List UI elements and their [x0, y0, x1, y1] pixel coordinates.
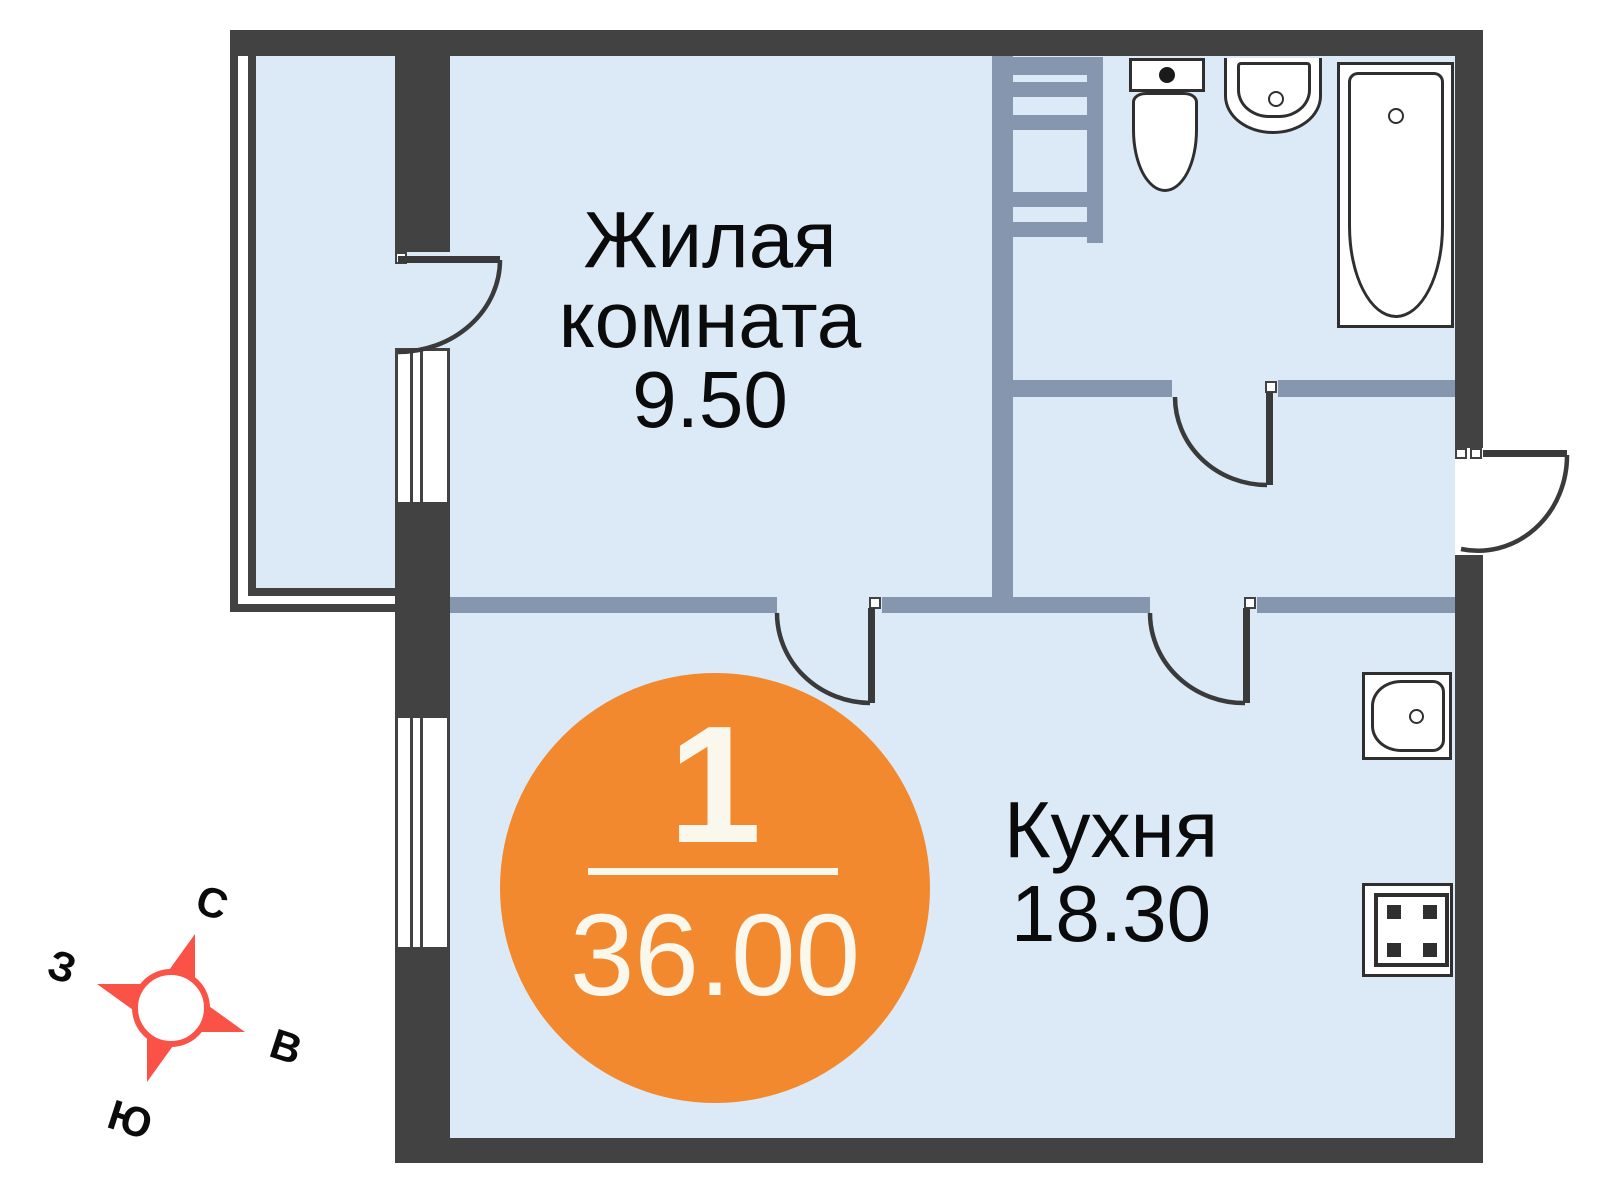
- partition-living-hall: [992, 56, 1013, 613]
- stove-burner-icon: [1387, 905, 1401, 919]
- stove-burner-icon: [1423, 943, 1437, 957]
- living-room-area: 9.50: [460, 360, 960, 440]
- stove-burner-icon: [1387, 943, 1401, 957]
- balcony-glazing-inner-bottom: [248, 588, 395, 596]
- vent-ladder-rung-2: [1013, 115, 1087, 130]
- stove-top-icon: [1374, 893, 1449, 967]
- vent-ladder-rung-1: [1013, 82, 1087, 97]
- bath-sink-basin-icon: [1237, 62, 1311, 118]
- balcony-door-opening: [395, 252, 450, 348]
- hinge-plate-entrance-2: [1470, 448, 1482, 459]
- living-kitchen-door-leaf: [868, 608, 875, 703]
- entrance-door-leaf: [1483, 450, 1567, 457]
- living-room-label: Жилая комната 9.50: [460, 200, 960, 440]
- hall-kitchen-door-leaf: [1243, 608, 1250, 703]
- apartment-summary-badge: 1 36.00: [500, 673, 930, 1103]
- outer-wall-left-pier: [395, 56, 450, 252]
- partition-kitchen-2: [882, 597, 1150, 613]
- bath-sink-drain-icon: [1268, 91, 1284, 107]
- room-count: 1: [500, 702, 930, 869]
- outer-wall-right-bottom: [1455, 555, 1483, 1163]
- outer-wall-left-bottom: [395, 950, 450, 1163]
- vent-ladder-rung-3: [1013, 192, 1087, 207]
- window-kitchen: [395, 715, 450, 950]
- vent-ladder-right-rail: [1087, 57, 1103, 243]
- compass-star-icon: [40, 870, 330, 1160]
- bathroom-door-leaf: [1266, 392, 1273, 485]
- balcony-glazing-inner-left: [248, 56, 256, 596]
- partition-kitchen-3: [1257, 597, 1455, 613]
- living-room-name-line1: Жилая: [460, 200, 960, 280]
- hinge-plate-entrance-1: [1455, 448, 1467, 459]
- kitchen-sink-basin-icon: [1371, 680, 1445, 752]
- outer-wall-left-mid: [395, 505, 450, 715]
- outer-wall-right-top: [1455, 30, 1483, 448]
- vent-ladder-rung-4: [1013, 222, 1087, 237]
- partition-bathroom-left: [1013, 380, 1172, 397]
- toilet-button-icon: [1159, 67, 1175, 83]
- balcony-floor: [256, 56, 395, 588]
- floorplan-canvas: Жилая комната 9.50 Кухня 18.30 1 36.00 С…: [0, 0, 1600, 1200]
- partition-kitchen-1: [450, 597, 777, 613]
- kitchen-sink-drain-icon: [1409, 709, 1424, 724]
- badge-divider: [588, 868, 838, 875]
- compass-rose: С З В Ю: [40, 870, 330, 1160]
- balcony-glazing-outer-bottom: [230, 604, 402, 612]
- outer-wall-top: [230, 30, 1483, 56]
- stove-burner-icon: [1423, 905, 1437, 919]
- kitchen-name: Кухня: [861, 788, 1361, 872]
- living-room-name-line2: комната: [460, 280, 960, 360]
- kitchen-area: 18.30: [861, 872, 1361, 956]
- entrance-opening: [1455, 448, 1483, 555]
- kitchen-label: Кухня 18.30: [861, 788, 1361, 956]
- balcony-glazing-outer-left: [230, 30, 238, 612]
- partition-bathroom-right: [1278, 380, 1455, 397]
- outer-wall-bottom: [395, 1138, 1483, 1163]
- bathtub-drain-icon: [1388, 108, 1404, 124]
- total-area: 36.00: [500, 897, 930, 1013]
- window-living-room: [395, 348, 450, 505]
